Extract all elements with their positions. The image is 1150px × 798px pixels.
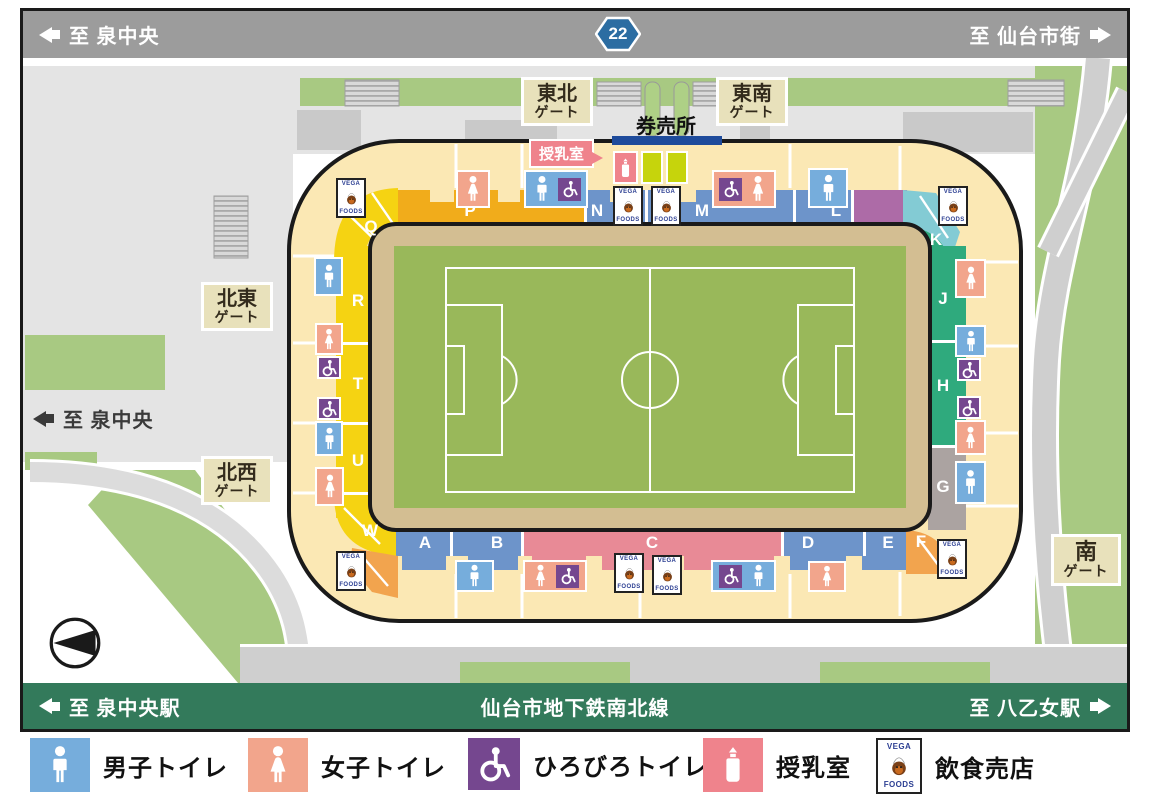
womens-toilet-icon	[315, 323, 343, 355]
womens-toilet-icon	[955, 259, 986, 298]
nursing-room-icon	[703, 738, 763, 792]
section-label-H: H	[937, 376, 949, 396]
gate-label-hokusei: 北西ゲート	[201, 456, 273, 505]
women-toilet-icon	[248, 738, 308, 792]
route-22-badge-icon: 22	[595, 16, 641, 52]
wheelchair-icon	[558, 178, 581, 201]
accessible-womens-toilet-icon	[712, 170, 776, 208]
vega-mascot-icon	[659, 200, 674, 213]
wheelchair-icon	[556, 565, 579, 588]
section-label-T: T	[353, 374, 363, 394]
wheelchair-icon	[719, 178, 742, 201]
accessible-womens-toilet-icon	[523, 560, 587, 592]
mens-toilet-icon	[455, 560, 494, 592]
woman-icon	[747, 175, 769, 203]
right-arrow-icon	[1090, 698, 1111, 714]
subway-line-bar: 至 泉中央駅 仙台市地下鉄南北線 至 八乙女駅	[23, 683, 1127, 729]
mens-toilet-icon	[315, 421, 343, 456]
mens-toilet-icon	[314, 257, 343, 296]
vega-foods-kiosk-icon: VEGAFOODS	[336, 551, 366, 591]
womens-toilet-icon	[315, 467, 344, 506]
legend-item-nursing-room: 授乳室	[703, 738, 851, 792]
soccer-field	[370, 224, 930, 530]
woman-icon	[531, 563, 550, 589]
section-label-C: C	[646, 533, 658, 553]
vega-mascot-icon	[344, 565, 359, 578]
vega-foods-kiosk-icon: VEGAFOODS	[336, 178, 366, 218]
legend-item-accessible-toilet: ひろびろトイレ	[468, 738, 708, 790]
accessible-toilet-icon	[468, 738, 520, 790]
gate-label-tohoku: 東北ゲート	[521, 77, 593, 126]
legend-item-mens-toilet: 男子トイレ	[30, 738, 228, 792]
wheelchair-icon	[719, 565, 742, 588]
mens-toilet-icon	[955, 325, 986, 357]
section-label-Q: Q	[364, 217, 377, 237]
vega-mascot-icon	[945, 553, 960, 566]
to-yaotome-station-label: 至 八乙女駅	[969, 692, 1111, 721]
subway-line-name: 仙台市地下鉄南北線	[481, 692, 670, 721]
to-izumi-chuo-road-label: 至 泉中央	[39, 20, 160, 49]
section-label-G: G	[936, 477, 949, 497]
vega-foods-kiosk-icon: VEGAFOODS	[937, 539, 967, 579]
section-label-N: N	[591, 201, 603, 221]
top-road-bar: 至 泉中央 至 仙台市街 22	[23, 11, 1127, 58]
left-arrow-icon	[39, 698, 60, 714]
vega-mascot-icon	[946, 200, 961, 213]
section-label-E: E	[882, 533, 893, 553]
section-label-A: A	[419, 533, 431, 553]
section-AB-block	[393, 530, 523, 556]
man-icon	[749, 563, 768, 589]
mens-toilet-icon	[955, 461, 986, 504]
left-arrow-icon	[33, 411, 54, 427]
womens-toilet-icon	[808, 561, 846, 592]
legend-item-food-shop: VEGAFOODS 飲食売店	[876, 738, 1035, 794]
ticket-booth	[641, 151, 663, 184]
gate-label-minami: 南ゲート	[1051, 534, 1121, 586]
legend-item-womens-toilet: 女子トイレ	[248, 738, 446, 792]
ticket-office-bar	[612, 136, 722, 145]
womens-toilet-icon	[955, 420, 986, 455]
nursing-room-icon	[613, 151, 638, 184]
vega-mascot-icon	[660, 569, 675, 582]
section-label-F: F	[916, 532, 926, 552]
vega-mascot-icon	[622, 567, 637, 580]
men-toilet-icon	[30, 738, 90, 792]
section-label-W: W	[362, 521, 378, 541]
vega-foods-kiosk-icon: VEGAFOODS	[651, 186, 681, 226]
mens-accessible-toilet-icon	[524, 170, 588, 208]
womens-toilet-icon	[456, 170, 490, 208]
accessible-toilet-icon	[317, 356, 341, 379]
right-arrow-icon	[1090, 27, 1111, 43]
mens-toilet-icon	[808, 168, 848, 208]
ticket-booth	[666, 151, 688, 184]
accessible-toilet-icon	[957, 358, 981, 381]
section-label-K: K	[930, 230, 942, 250]
vega-mascot-icon	[344, 192, 359, 205]
mens-accessible-toilet-icon	[711, 560, 776, 592]
vega-foods-kiosk-icon: VEGAFOODS	[938, 186, 968, 226]
to-izumi-chuo-inner-label: 至 泉中央	[33, 404, 154, 433]
section-label-U: U	[352, 451, 364, 471]
section-label-M: M	[695, 201, 709, 221]
accessible-toilet-icon	[957, 396, 981, 419]
to-sendai-city-road-label: 至 仙台市街	[969, 20, 1111, 49]
section-label-D: D	[802, 533, 814, 553]
food-shop-icon: VEGAFOODS	[876, 738, 922, 794]
vega-foods-kiosk-icon: VEGAFOODS	[613, 186, 643, 226]
vega-mascot-icon	[887, 756, 911, 776]
vega-mascot-icon	[621, 200, 636, 213]
ticket-office-label: 券売所	[604, 110, 728, 139]
road-label-text: 至 泉中央	[69, 20, 160, 49]
section-label-R: R	[352, 291, 364, 311]
road-label-text: 至 仙台市街	[969, 20, 1081, 49]
left-arrow-icon	[39, 27, 60, 43]
section-purple-block	[853, 190, 907, 224]
compass-icon	[48, 616, 102, 670]
gate-label-hokuto: 北東ゲート	[201, 282, 273, 331]
vega-foods-kiosk-icon: VEGAFOODS	[652, 555, 682, 595]
to-izumi-chuo-station-label: 至 泉中央駅	[39, 692, 181, 721]
callout-pointer	[592, 152, 603, 164]
accessible-toilet-icon	[317, 397, 341, 420]
section-label-B: B	[491, 533, 503, 553]
vega-foods-kiosk-icon: VEGAFOODS	[614, 553, 644, 593]
stadium-guide-map: 至 泉中央 至 仙台市街 22	[0, 0, 1150, 798]
man-icon	[531, 175, 553, 203]
section-label-J: J	[938, 289, 947, 309]
nursing-room-callout: 授乳室	[529, 139, 594, 168]
